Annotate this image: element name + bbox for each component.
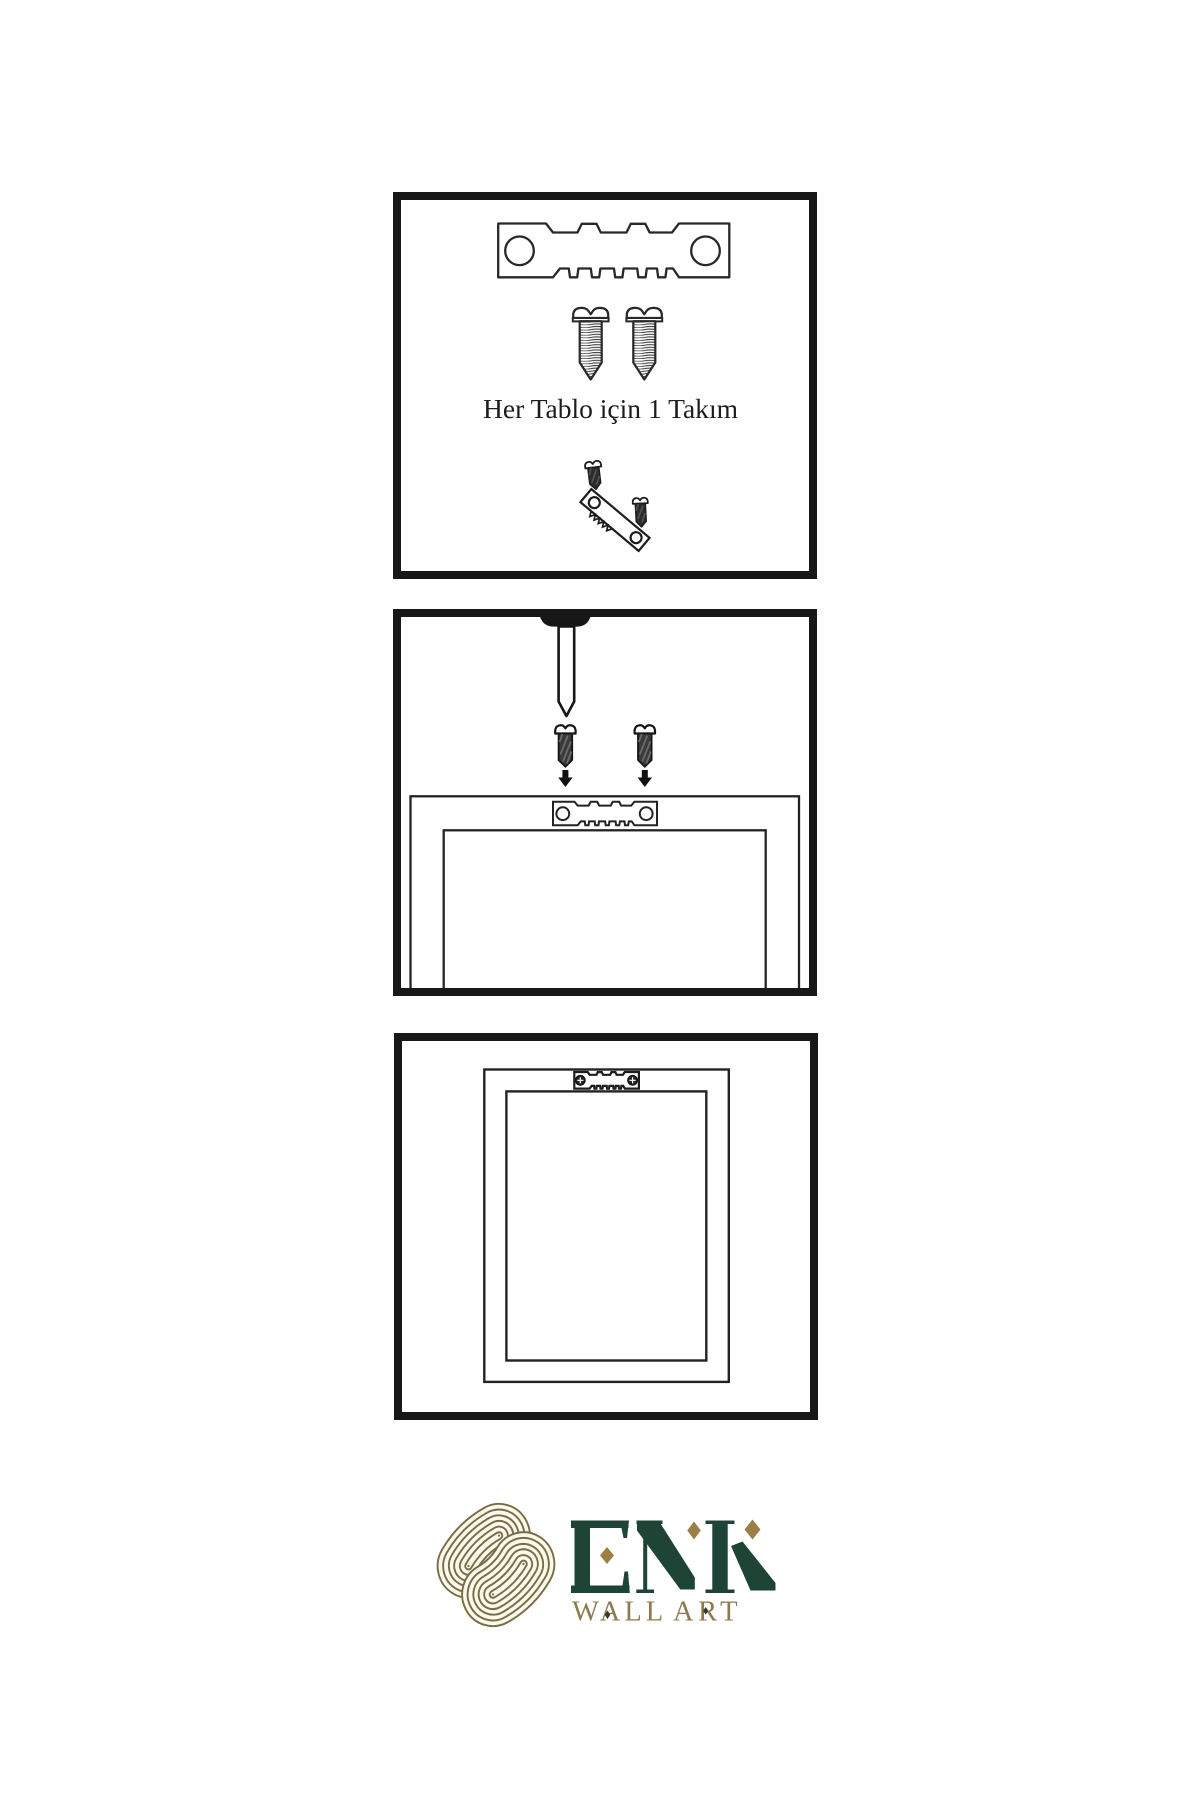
svg-text:Her Tablo için 1 Takım: Her Tablo için 1 Takım [483,394,738,424]
svg-text:WALL: WALL [572,1596,667,1627]
